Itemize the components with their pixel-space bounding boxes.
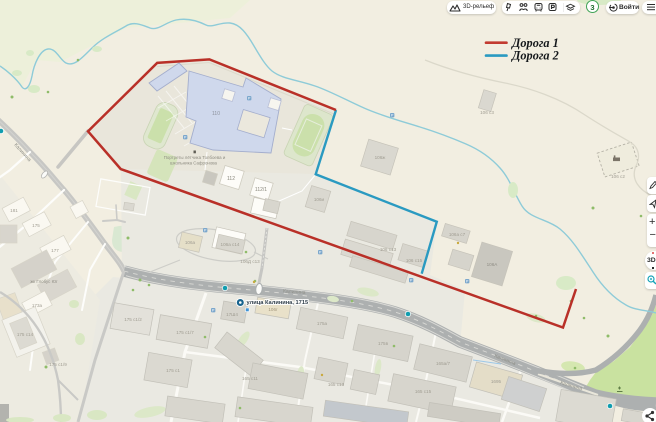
svg-text:Портреты лётчика Толбоева и: Портреты лётчика Толбоева и <box>164 155 226 160</box>
svg-text:106 с3: 106 с3 <box>480 110 494 115</box>
svg-text:165а/7: 165а/7 <box>436 361 450 366</box>
svg-text:181: 181 <box>10 208 18 213</box>
svg-text:P: P <box>248 97 251 101</box>
svg-text:1695: 1695 <box>491 379 502 384</box>
svg-text:175 с1/9: 175 с1/9 <box>49 362 67 367</box>
svg-text:165 с13: 165 с13 <box>328 382 345 387</box>
svg-text:110: 110 <box>212 111 220 117</box>
svg-text:школьника Сафронова: школьника Сафронова <box>170 161 218 166</box>
svg-text:106 с2: 106 с2 <box>611 174 625 179</box>
svg-text:17Ш4: 17Ш4 <box>226 312 238 317</box>
svg-text:175в: 175в <box>378 341 389 346</box>
svg-text:P: P <box>410 279 413 283</box>
svg-text:106А: 106А <box>487 262 499 267</box>
svg-text:175 с14: 175 с14 <box>17 332 34 337</box>
svg-text:106г: 106г <box>268 307 278 312</box>
svg-text:106Д с13: 106Д с13 <box>240 259 260 264</box>
svg-text:P: P <box>391 114 394 118</box>
svg-text:165 с15: 165 с15 <box>415 389 432 394</box>
svg-text:165 с11: 165 с11 <box>242 376 258 381</box>
svg-text:177: 177 <box>51 248 59 253</box>
svg-text:175 с1: 175 с1 <box>166 368 180 373</box>
svg-text:106 с13: 106 с13 <box>380 247 397 252</box>
svg-text:106 с15: 106 с15 <box>406 258 423 263</box>
svg-text:175 с1/7: 175 с1/7 <box>176 330 194 335</box>
svg-text:Дорога 2: Дорога 2 <box>511 49 559 63</box>
svg-text:улица Калинина, 1715: улица Калинина, 1715 <box>247 300 309 306</box>
svg-text:P: P <box>466 280 469 284</box>
svg-text:P: P <box>204 229 207 233</box>
svg-text:P: P <box>212 309 215 313</box>
svg-text:106а с14: 106а с14 <box>221 242 240 247</box>
svg-text:175 с1/2: 175 с1/2 <box>124 317 142 322</box>
svg-text:173а: 173а <box>32 303 43 308</box>
svg-text:106а: 106а <box>185 240 196 245</box>
svg-text:106ж: 106ж <box>375 155 387 160</box>
svg-text:175а: 175а <box>317 321 328 326</box>
svg-text:жк Глобус Юг: жк Глобус Юг <box>30 279 58 284</box>
svg-text:106а с7: 106а с7 <box>449 232 466 237</box>
svg-text:112/1: 112/1 <box>255 187 267 193</box>
svg-text:175: 175 <box>32 223 40 228</box>
svg-text:P: P <box>319 251 322 255</box>
svg-text:P: P <box>184 136 187 140</box>
svg-text:106и: 106и <box>314 197 325 202</box>
svg-text:112: 112 <box>227 176 235 182</box>
